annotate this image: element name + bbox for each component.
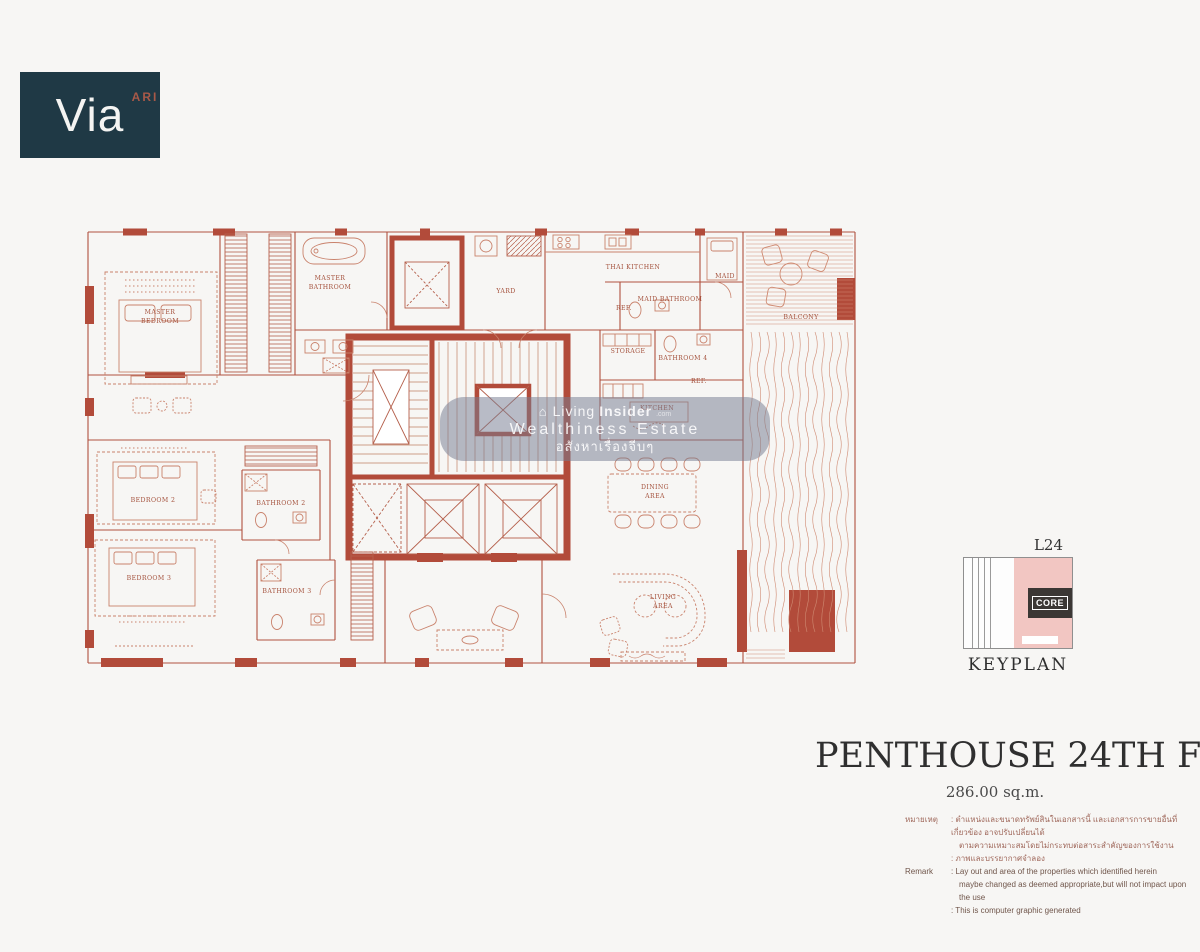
keyplan: L24 CORE KEYPLAN (963, 536, 1073, 675)
room-label: LIVINGAREA (650, 594, 676, 610)
room-label: MASTERBATHROOM (309, 275, 352, 291)
room-label: REF. (691, 378, 707, 385)
keyplan-box: CORE (963, 557, 1073, 649)
remark-en-line1: : Lay out and area of the properties whi… (951, 865, 1193, 878)
keyplan-caption: KEYPLAN (963, 655, 1073, 675)
room-label: MAID BATHROOM (638, 296, 703, 303)
watermark-brand-light: Living (553, 404, 596, 419)
keyplan-core-badge: CORE (1028, 588, 1072, 618)
room-label: BATHROOM 4 (658, 355, 707, 362)
watermark-brand-bold: Insider (599, 404, 652, 419)
keyplan-highlight-section: CORE (1014, 558, 1072, 648)
room-label: MASTERBEDROOM (141, 309, 179, 325)
keyplan-core-label: CORE (1032, 596, 1068, 610)
room-label: BALCONY (783, 314, 819, 321)
brand-name: Via (56, 89, 125, 141)
keyplan-unit-section (964, 558, 1014, 648)
watermark-line2: Wealthiness Estate (510, 421, 701, 439)
room-label: REF. (616, 305, 632, 312)
remarks: หมายเหตุ : ตำแหน่งและขนาดทรัพย์สินในเอกส… (905, 813, 1193, 917)
room-label: BEDROOM 3 (127, 575, 172, 582)
title-block: PENTHOUSE 24TH FL. 286.00 sq.m. (815, 736, 1175, 801)
remark-thai-line1: : ตำแหน่งและขนาดทรัพย์สินในเอกสารนี้ และ… (951, 813, 1193, 839)
brand-suffix: ARI (132, 90, 159, 104)
remark-thai-line2: ตามความเหมาะสมโดยไม่กระทบต่อสาระสำคัญของ… (951, 839, 1193, 852)
keyplan-notch (1022, 636, 1058, 644)
brand-logo: Via ARI (20, 72, 160, 158)
unit-area: 286.00 sq.m. (815, 783, 1175, 801)
watermark-brand-tld: .com (656, 411, 671, 419)
room-label: YARD (495, 288, 515, 295)
page-title: PENTHOUSE 24TH FL. (815, 736, 1175, 776)
room-label: THAI KITCHEN (606, 264, 661, 271)
home-icon: ⌂ (539, 405, 547, 419)
remark-en-line2: maybe changed as deemed appropriate,but … (951, 878, 1193, 904)
room-label: DININGAREA (641, 484, 669, 500)
room-label: BEDROOM 2 (131, 497, 176, 504)
room-label: MAID (715, 273, 735, 280)
remark-en-label: Remark (905, 865, 951, 878)
room-label: BATHROOM 2 (256, 500, 305, 507)
watermark: ⌂ Living Insider .com Wealthiness Estate… (440, 397, 770, 461)
remark-thai-line3: : ภาพและบรรยากาศจำลอง (951, 852, 1193, 865)
room-label: BATHROOM 3 (262, 588, 311, 595)
room-label: STORAGE (611, 348, 646, 355)
remark-en-line3: : This is computer graphic generated (951, 904, 1193, 917)
remark-thai-label: หมายเหตุ (905, 813, 951, 839)
keyplan-floor-label: L24 (963, 536, 1073, 554)
watermark-line3: อสังหาเรื่องจีบๆ (556, 440, 654, 454)
